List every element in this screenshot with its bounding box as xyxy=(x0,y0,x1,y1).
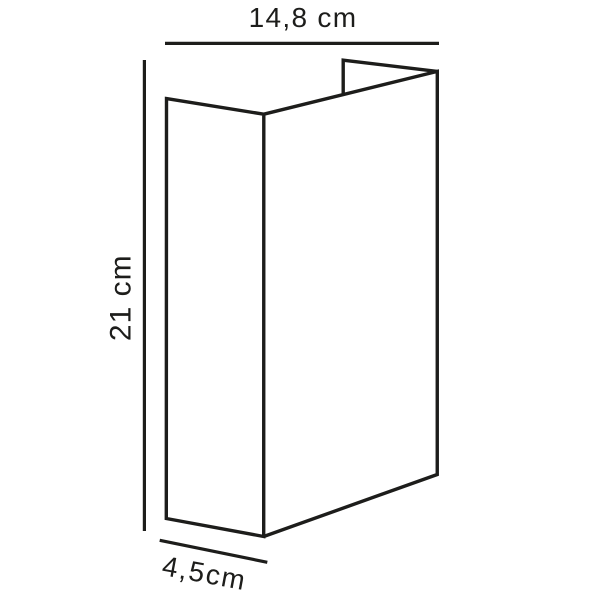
svg-text:21 cm: 21 cm xyxy=(104,254,137,341)
svg-text:14,8 cm: 14,8 cm xyxy=(249,2,358,33)
